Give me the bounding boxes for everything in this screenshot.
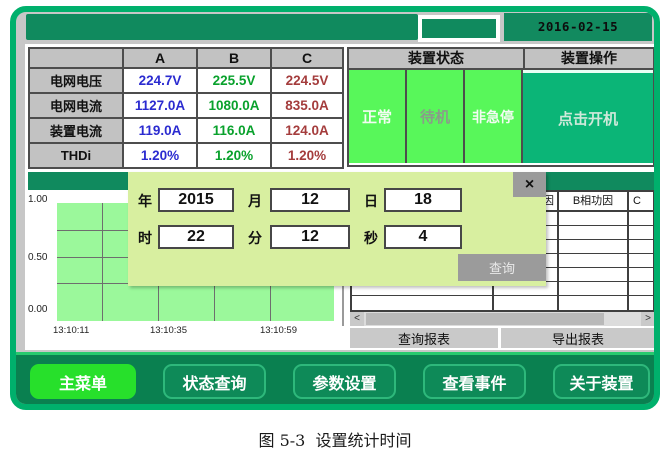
table-row: THDi 1.20% 1.20% 1.20% [29,143,343,168]
bottom-nav: 主菜单 状态查询 参数设置 查看事件 关于装置 [16,352,654,404]
value-cell: 1.20% [123,143,197,168]
indicator-box [418,15,500,42]
status-header: 装置状态 [349,49,525,68]
y-axis-tick: 0.00 [28,304,56,315]
hour-label: 时 [138,228,152,248]
value-cell: 1.20% [271,143,343,168]
report-col-b-pf: B相功因 [559,192,629,210]
status-non-estop-indicator: 非急停 [465,70,523,163]
scroll-left-icon[interactable]: < [350,312,364,326]
nav-about-device[interactable]: 关于装置 [553,364,650,399]
report-col-partial: C [629,192,653,210]
table-row: 电网电压 224.7V 225.5V 224.5V [29,68,343,93]
x-axis-tick: 13:10:59 [260,325,297,336]
table-header-row: A B C [29,48,343,68]
year-input[interactable] [158,188,234,212]
x-axis-tick: 13:10:11 [53,325,89,336]
hmi-frame: 2016-02-15 13:11:09 A B C 电网电压 224.7V 22… [10,6,660,410]
hour-input[interactable] [158,225,234,249]
nav-main-menu[interactable]: 主菜单 [30,364,136,399]
title-bar-blank [26,14,418,40]
table-row: 电网电流 1127.0A 1080.0A 835.0A [29,93,343,118]
datetime-dialog: × 年 月 日 时 分 秒 查询 [128,172,546,286]
second-label: 秒 [364,228,378,248]
row-label: 电网电流 [29,93,123,118]
value-cell: 225.5V [197,68,271,93]
row-label: 装置电流 [29,118,123,143]
value-cell: 224.5V [271,68,343,93]
table-row: 装置电流 119.0A 116.0A 124.0A [29,118,343,143]
month-label: 月 [248,191,262,211]
value-cell: 1080.0A [197,93,271,118]
col-header-c: C [271,48,343,68]
report-empty-row [352,296,653,310]
value-cell: 1.20% [197,143,271,168]
minute-input[interactable] [270,225,350,249]
status-normal-indicator: 正常 [349,70,407,163]
value-cell: 835.0A [271,93,343,118]
minute-label: 分 [248,228,262,248]
value-cell: 116.0A [197,118,271,143]
scrollbar-thumb[interactable] [366,313,604,325]
status-standby-indicator: 待机 [407,70,465,163]
main-content: A B C 电网电压 224.7V 225.5V 224.5V 电网电流 112… [25,44,655,350]
value-cell: 119.0A [123,118,197,143]
corner-cell [29,48,123,68]
measurements-table: A B C 电网电压 224.7V 225.5V 224.5V 电网电流 112… [28,47,344,169]
scroll-right-icon[interactable]: > [641,312,655,326]
value-cell: 224.7V [123,68,197,93]
gridline [102,203,103,321]
screenshot-page: 2016-02-15 13:11:09 A B C 电网电压 224.7V 22… [0,0,670,455]
dialog-query-button[interactable]: 查询 [458,254,546,281]
operation-header: 装置操作 [525,49,653,68]
indicator-box-fill [422,19,496,38]
day-label: 日 [364,191,378,211]
row-label: 电网电压 [29,68,123,93]
day-input[interactable] [384,188,462,212]
figure-caption: 图 5-3 设置统计时间 [0,427,670,451]
nav-parameter-settings[interactable]: 参数设置 [293,364,396,399]
scrollbar-track[interactable] [364,312,641,326]
x-axis-tick: 13:10:35 [150,325,187,336]
nav-view-events[interactable]: 查看事件 [423,364,526,399]
col-header-b: B [197,48,271,68]
y-axis-tick: 1.00 [28,194,56,205]
query-report-button[interactable]: 查询报表 [350,328,498,348]
close-icon[interactable]: × [513,172,546,197]
power-on-button[interactable]: 点击开机 [523,70,653,163]
value-cell: 1127.0A [123,93,197,118]
row-label: THDi [29,143,123,168]
y-axis-tick: 0.50 [28,252,56,263]
report-scrollbar[interactable]: < > [350,312,655,326]
nav-status-query[interactable]: 状态查询 [163,364,266,399]
second-input[interactable] [384,225,462,249]
year-label: 年 [138,191,152,211]
export-report-button[interactable]: 导出报表 [501,328,655,348]
value-cell: 124.0A [271,118,343,143]
month-input[interactable] [270,188,350,212]
col-header-a: A [123,48,197,68]
device-status-panel: 装置状态 装置操作 正常 待机 非急停 点击开机 [347,47,655,167]
clock-display: 2016-02-15 13:11:09 [504,13,652,41]
